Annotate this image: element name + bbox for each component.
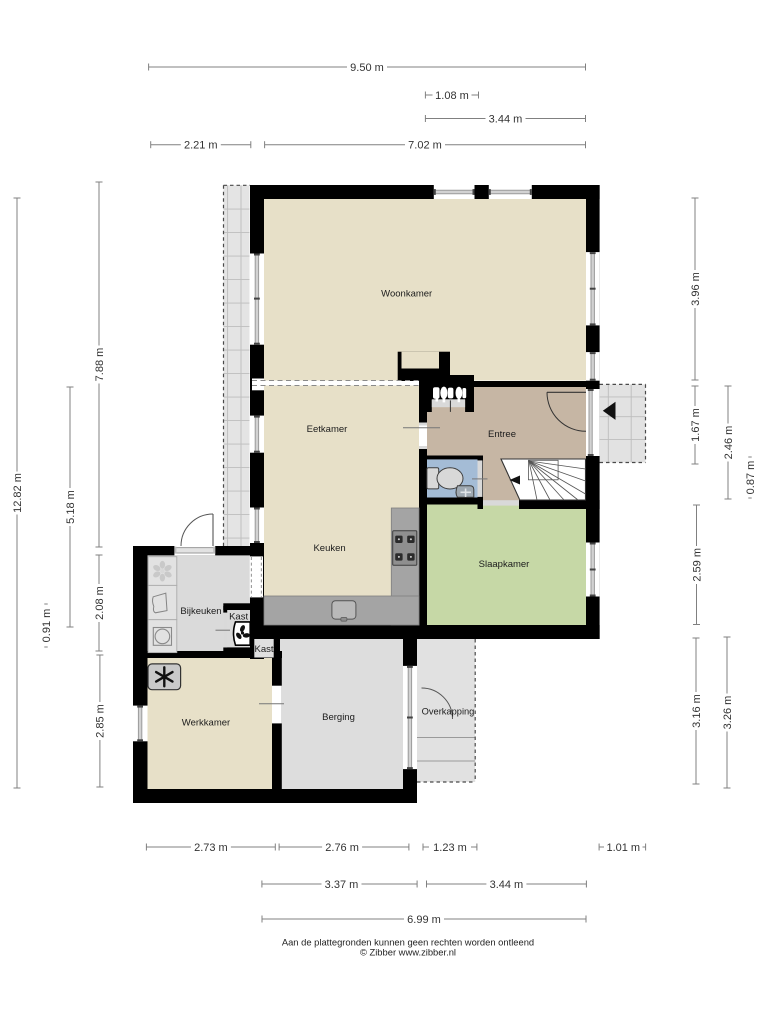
svg-text:Eetkamer: Eetkamer xyxy=(307,424,348,435)
svg-text:Woonkamer: Woonkamer xyxy=(381,289,432,300)
svg-text:Werkkamer: Werkkamer xyxy=(182,718,230,729)
svg-text:7.88 m: 7.88 m xyxy=(94,348,106,382)
svg-text:Overkapping: Overkapping xyxy=(422,707,475,717)
svg-text:2.76 m: 2.76 m xyxy=(325,842,359,854)
svg-text:Keuken: Keuken xyxy=(313,543,345,554)
svg-text:6.99 m: 6.99 m xyxy=(407,914,441,926)
svg-text:1.67 m: 1.67 m xyxy=(690,408,702,442)
svg-text:Kast: Kast xyxy=(229,612,248,623)
svg-text:Kast: Kast xyxy=(254,644,273,655)
svg-text:3.96 m: 3.96 m xyxy=(690,272,702,306)
svg-text:0.87 m: 0.87 m xyxy=(745,461,757,495)
svg-text:5.18 m: 5.18 m xyxy=(65,490,77,524)
svg-text:1.08 m: 1.08 m xyxy=(435,90,469,102)
svg-text:3.26 m: 3.26 m xyxy=(722,696,734,730)
svg-text:2.08 m: 2.08 m xyxy=(94,586,106,620)
svg-text:0.91 m: 0.91 m xyxy=(41,609,53,643)
svg-text:Entree: Entree xyxy=(488,429,516,440)
svg-text:2.59 m: 2.59 m xyxy=(691,548,703,582)
svg-text:Bijkeuken: Bijkeuken xyxy=(180,606,221,617)
svg-text:7.02 m: 7.02 m xyxy=(408,140,442,152)
svg-text:2.85 m: 2.85 m xyxy=(95,704,107,738)
svg-text:1.23 m: 1.23 m xyxy=(433,842,467,854)
svg-text:Slaapkamer: Slaapkamer xyxy=(479,559,530,570)
svg-text:2.73 m: 2.73 m xyxy=(194,842,228,854)
svg-text:3.44 m: 3.44 m xyxy=(489,113,523,125)
svg-text:1.01 m: 1.01 m xyxy=(606,842,640,854)
svg-text:3.37 m: 3.37 m xyxy=(325,879,359,891)
svg-text:2.21 m: 2.21 m xyxy=(184,140,218,152)
svg-text:9.50 m: 9.50 m xyxy=(350,62,384,74)
svg-text:3.44 m: 3.44 m xyxy=(490,879,524,891)
svg-text:© Zibber www.zibber.nl: © Zibber www.zibber.nl xyxy=(360,947,456,958)
svg-text:12.82 m: 12.82 m xyxy=(12,473,24,513)
svg-text:Berging: Berging xyxy=(322,712,355,723)
svg-text:2.46 m: 2.46 m xyxy=(723,426,735,460)
svg-text:3.16 m: 3.16 m xyxy=(691,694,703,728)
